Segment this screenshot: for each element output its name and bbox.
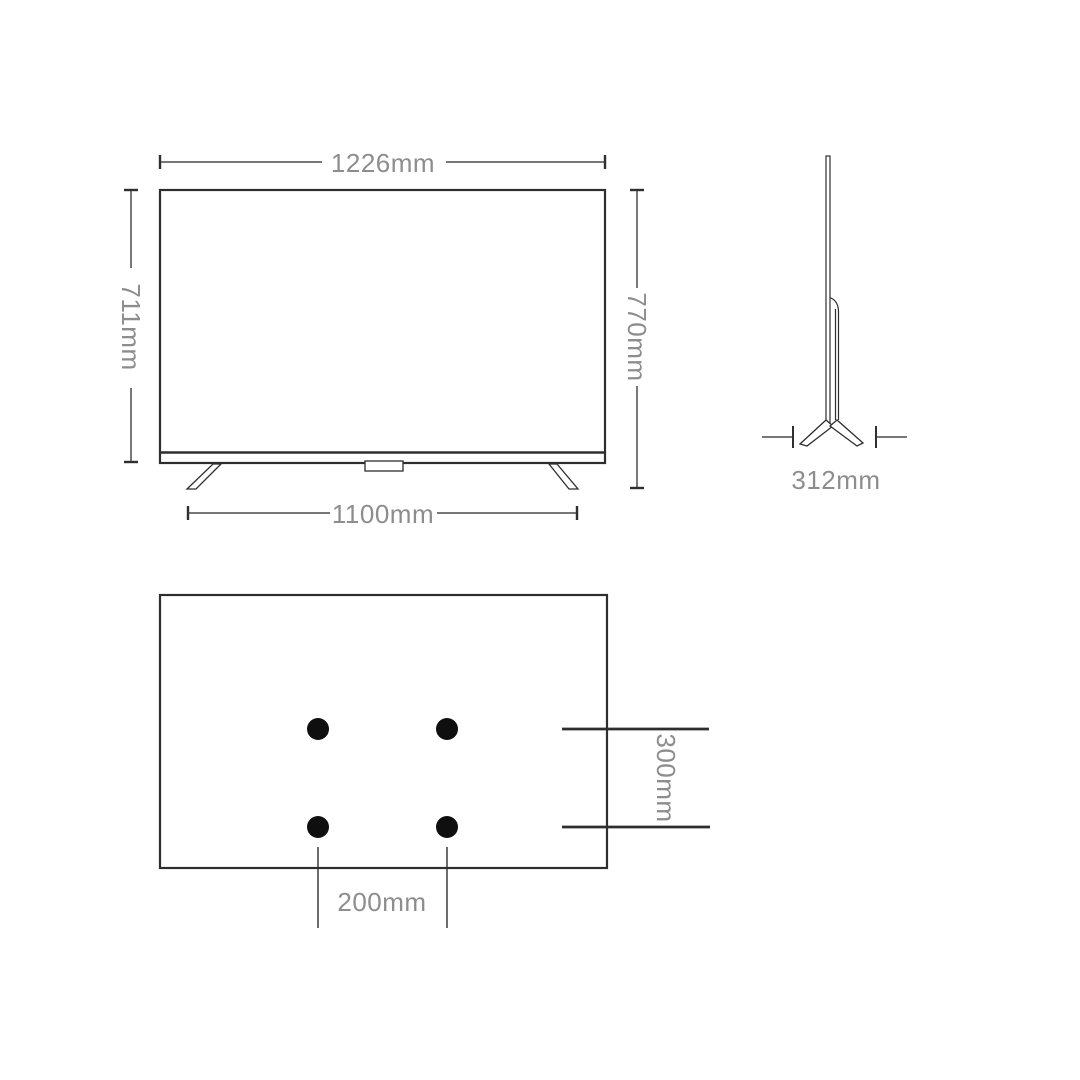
dimension-vesa-vertical: 300mm [562,729,710,827]
back-view: 300mm 200mm [160,595,710,928]
vesa-hole-top-left [307,718,329,740]
vesa-hole-bottom-left [307,816,329,838]
tv-dimension-diagram: 1226mm 711mm [0,0,1080,1080]
width-dimension-label: 1226mm [331,148,435,178]
back-panel-outline [160,595,607,868]
dimension-stand-width: 1100mm [188,499,577,529]
stand-width-dimension-label: 1100mm [332,499,434,529]
vesa-horizontal-dimension-label: 200mm [337,887,426,917]
vesa-hole-bottom-right [436,816,458,838]
tv-right-foot [549,464,578,489]
dimension-depth: 312mm [762,426,907,495]
dimension-vesa-horizontal: 200mm [318,847,447,928]
diagram-svg: 1226mm 711mm [0,0,1080,1080]
panel-height-dimension-label: 711mm [116,283,146,370]
depth-dimension-label: 312mm [791,465,880,495]
vesa-hole-top-right [436,718,458,740]
dimension-panel-height: 711mm [116,190,146,462]
side-stand-left-leg [800,420,833,446]
vesa-vertical-dimension-label: 300mm [651,733,681,822]
side-stand-right-leg [830,420,863,446]
tv-center-tab [365,461,403,471]
total-height-dimension-label: 770mm [622,292,652,381]
tv-left-foot [187,464,221,489]
front-view: 1226mm 711mm [116,148,652,529]
dimension-width: 1226mm [160,148,605,178]
side-view: 312mm [762,156,907,495]
side-rear-housing-outer [830,298,839,421]
dimension-total-height: 770mm [622,190,652,488]
tv-screen-outline [160,190,605,463]
side-panel-profile [826,156,830,424]
